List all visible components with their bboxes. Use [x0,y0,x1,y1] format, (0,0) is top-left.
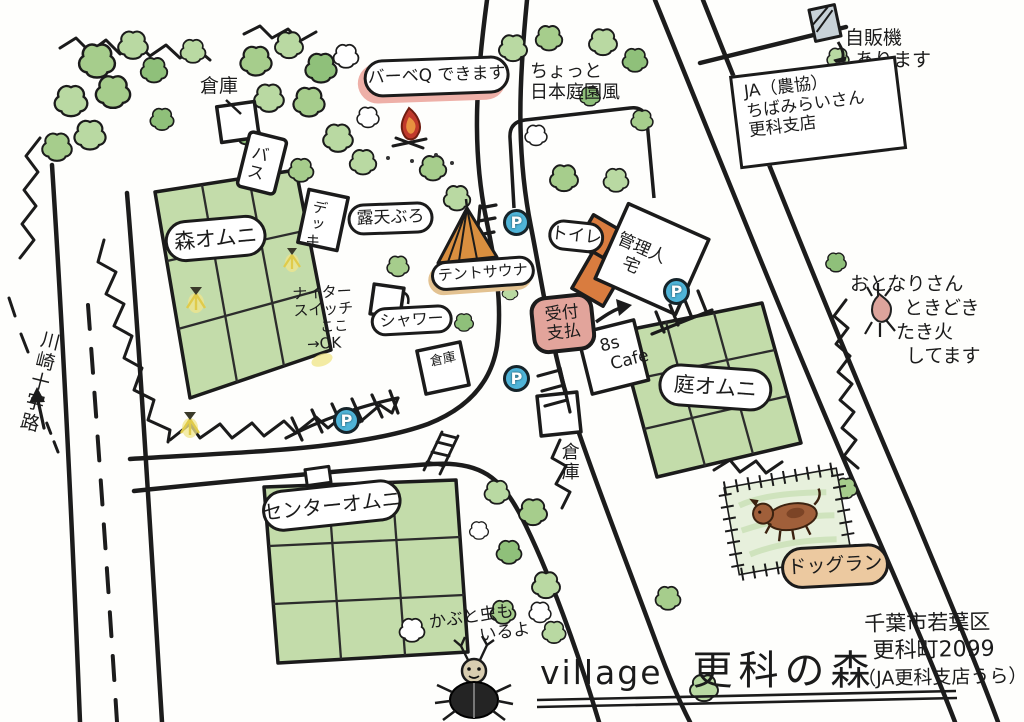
hand-drawn-map: 倉庫 バス バーベQ できます ちょっと 日本庭園風 自販機 あります JA（農… [0,0,1024,722]
parking-marker-3: P [333,407,360,434]
address-line1: 千葉市若葉区 [864,609,1024,636]
address-line2: 更科町2099 [872,636,1024,664]
campfire-icon [386,108,454,165]
reception-line2: 支払 [546,322,582,344]
map-title: village 更科の森 [540,638,877,696]
storage-bottom-label: 倉庫 [558,442,579,482]
neighbor-line3: たき火 [896,322,980,344]
court-niwa-label: 庭オムニ [657,362,774,413]
neighbor-line4: してます [906,346,980,368]
address-block: 千葉市若葉区 更科町2099 （JA更科支店うら） [856,609,1024,691]
storage-bottom-building [537,392,581,436]
nighter-note: ナイター スイッチ ここ →OK [292,283,355,354]
map-title-prefix: village [540,653,663,692]
reception-sign: 受付 支払 [528,291,598,355]
bbq-note-bubble: バーベQ できます [363,55,510,98]
address-line3: （JA更科支店うら） [857,666,1024,691]
dog-run-label: ドッグラン [780,542,890,590]
neighbor-note: おとなりさん ときどき たき火 してます [850,274,980,367]
garden-note: ちょっと 日本庭園風 [530,62,620,103]
vending-note-line1: 自販機 [845,28,931,50]
stairs-icon [424,432,458,474]
nighter-line4: →OK [307,333,356,353]
neighbor-line1: おとなりさん [850,274,980,296]
neighbor-line2: ときどき [904,298,980,320]
nighter-line3: ここ [320,317,355,335]
shower-label: シャワー [370,304,453,337]
garden-note-line2: 日本庭園風 [530,83,620,104]
rotenburo-label: 露天ぶろ [347,201,434,236]
garden-note-line1: ちょっと [530,62,620,83]
parking-marker-1: P [503,209,530,236]
parking-marker-4: P [503,365,530,392]
parking-marker-2: P [663,278,690,305]
road-center-dashes [88,305,117,722]
map-title-name: 更科の森 [693,638,877,696]
storage-top-label: 倉庫 [200,76,238,98]
vending-machine-icon [809,5,841,42]
